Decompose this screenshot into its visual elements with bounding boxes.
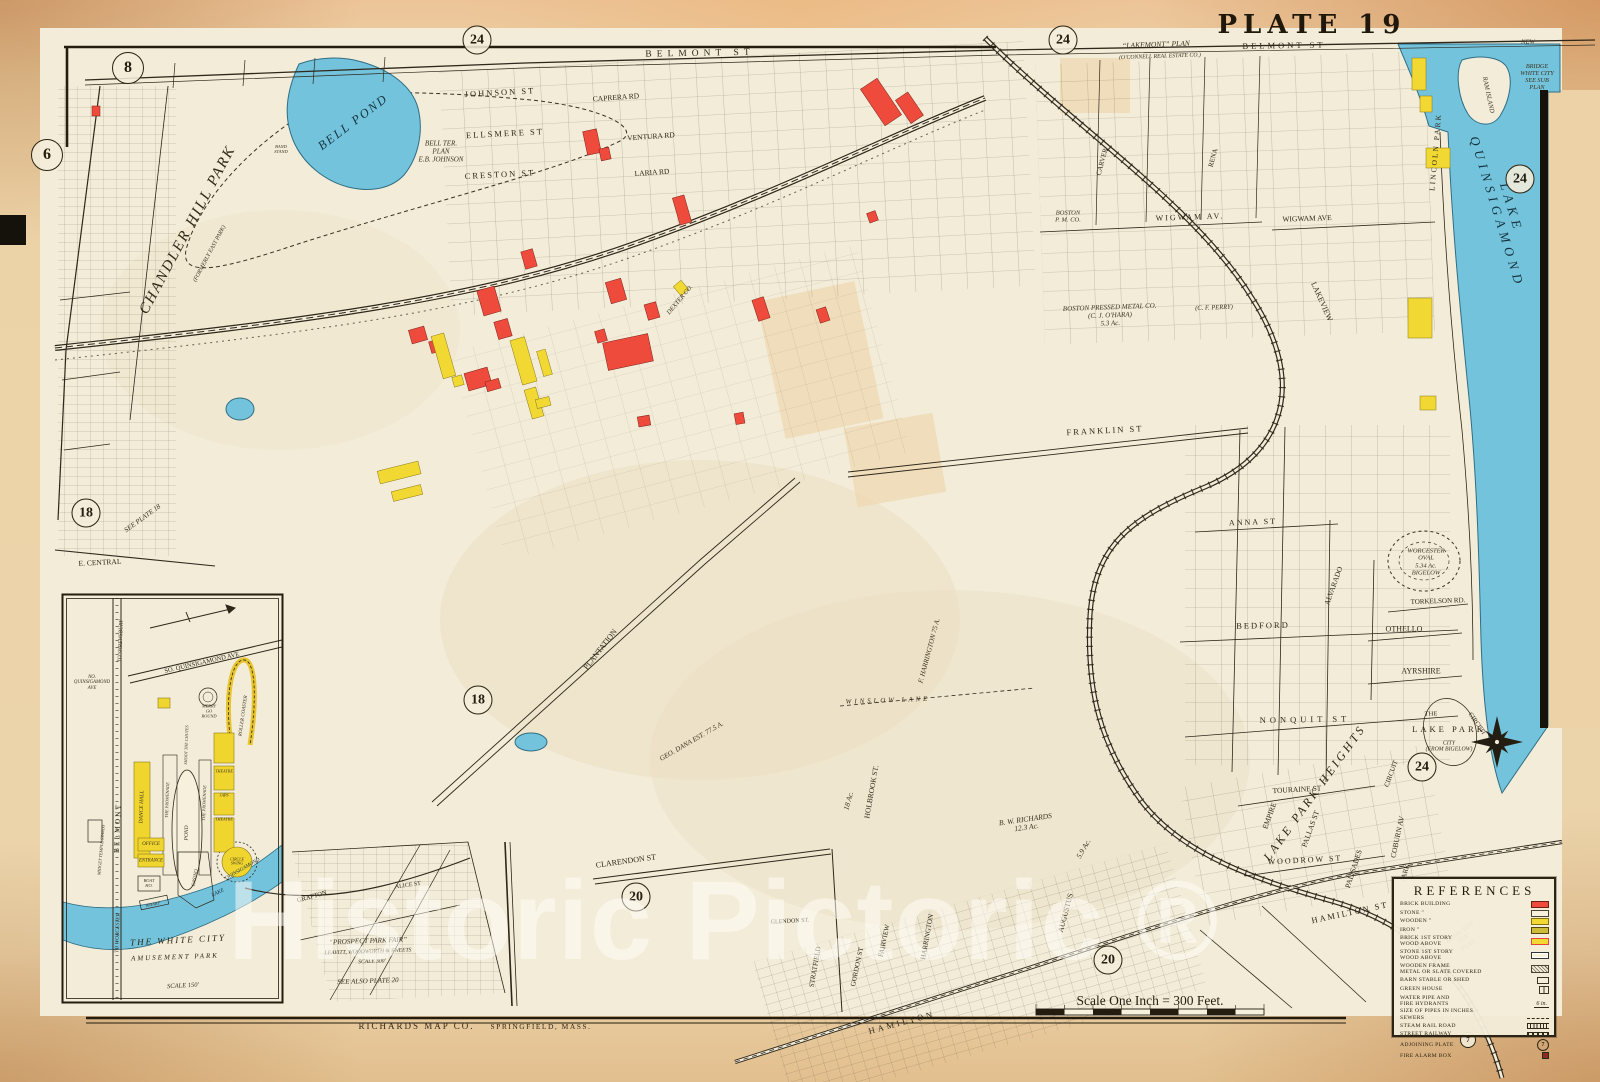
legend-swatch-stone1 bbox=[1531, 952, 1549, 959]
legend-row: SEWERS bbox=[1400, 1015, 1549, 1021]
legend-row-label: BRICK 1ST STORY WOOD ABOVE bbox=[1400, 935, 1452, 948]
references-legend: REFERENCES BRICK BUILDINGSTONE ″WOODEN ″… bbox=[1392, 877, 1556, 1037]
legend-swatch-streetry bbox=[1527, 1032, 1549, 1036]
publisher-name: RICHARDS MAP CO. bbox=[359, 1021, 475, 1031]
legend-swatch-alarm bbox=[1542, 1052, 1549, 1059]
publisher-city: SPRINGFIELD, MASS. bbox=[490, 1022, 591, 1031]
legend-swatch-iron bbox=[1531, 927, 1549, 934]
legend-row: STEAM RAIL ROAD bbox=[1400, 1023, 1549, 1029]
legend-row-label: GREEN HOUSE bbox=[1400, 986, 1443, 992]
legend-swatch-greenhouse bbox=[1539, 986, 1549, 994]
legend-row: WOODEN ″ bbox=[1400, 918, 1549, 925]
plate-number-badge: 8 bbox=[112, 52, 144, 84]
legend-row: BARN STABLE OR SHED bbox=[1400, 977, 1549, 984]
legend-swatch-plate: 7 bbox=[1537, 1039, 1549, 1051]
legend-row-label: WOODEN ″ bbox=[1400, 918, 1431, 924]
plate-number-badge: 20 bbox=[622, 883, 651, 912]
legend-swatch-steamrr bbox=[1527, 1023, 1549, 1029]
legend-row: WOODEN FRAME METAL OR SLATE COVERED bbox=[1400, 963, 1549, 976]
legend-row: FIRE ALARM BOX bbox=[1400, 1052, 1549, 1059]
legend-row-label: STEAM RAIL ROAD bbox=[1400, 1023, 1456, 1029]
publisher-imprint: RICHARDS MAP CO.SPRINGFIELD, MASS. bbox=[359, 1021, 592, 1031]
legend-row: BRICK BUILDING bbox=[1400, 901, 1549, 908]
legend-row: WATER PIPE AND FIRE HYDRANTS SIZE OF PIP… bbox=[1400, 995, 1549, 1014]
plate-number-badge: 24 bbox=[1408, 753, 1437, 782]
legend-row: GREEN HOUSE bbox=[1400, 986, 1549, 994]
legend-row-label: BRICK BUILDING bbox=[1400, 901, 1451, 907]
atlas-sheet: BELMONT STBELMONT STJOHNSON STELLSMERE S… bbox=[0, 0, 1600, 1082]
legend-row-label: SEWERS bbox=[1400, 1015, 1424, 1021]
legend-row: STONE 1ST STORY WOOD ABOVE bbox=[1400, 949, 1549, 962]
plate-number-badge: 20 bbox=[1094, 946, 1123, 975]
legend-swatch-wood bbox=[1531, 918, 1549, 925]
scale-note: Scale One Inch = 300 Feet. bbox=[1076, 993, 1223, 1009]
legend-rows: BRICK BUILDINGSTONE ″WOODEN ″IRON ″BRICK… bbox=[1400, 901, 1549, 1059]
plate-title: PLATE 19 bbox=[1218, 10, 1407, 40]
plate-number-badge: 24 bbox=[1506, 165, 1535, 194]
legend-swatch-barn bbox=[1537, 977, 1549, 984]
legend-row-label: FIRE ALARM BOX bbox=[1400, 1053, 1452, 1059]
legend-row: STREET RAILWAY bbox=[1400, 1031, 1549, 1037]
legend-swatch-metal bbox=[1531, 965, 1549, 973]
plate-badges-layer: 8624242418182020247 bbox=[0, 0, 1600, 1082]
legend-row-label: STONE ″ bbox=[1400, 910, 1424, 916]
plate-number-badge: 24 bbox=[463, 26, 492, 55]
plate-number-badge: 18 bbox=[464, 686, 493, 715]
plate-number-badge: 18 bbox=[72, 499, 101, 528]
plate-number-badge: 24 bbox=[1049, 26, 1078, 55]
legend-row: ADJOINING PLATE7 bbox=[1400, 1039, 1549, 1051]
legend-row-label: BARN STABLE OR SHED bbox=[1400, 977, 1470, 983]
plate-number-badge: 6 bbox=[31, 139, 63, 171]
legend-row-label: STONE 1ST STORY WOOD ABOVE bbox=[1400, 949, 1453, 962]
legend-swatch-brick1 bbox=[1531, 938, 1549, 945]
legend-swatch-sewer bbox=[1527, 1018, 1549, 1019]
legend-row: STONE ″ bbox=[1400, 910, 1549, 917]
legend-swatch-pipe: 6 in. bbox=[1534, 1001, 1549, 1008]
legend-row-label: ADJOINING PLATE bbox=[1400, 1042, 1454, 1048]
legend-row-label: IRON ″ bbox=[1400, 927, 1420, 933]
legend-row-label: WATER PIPE AND FIRE HYDRANTS SIZE OF PIP… bbox=[1400, 995, 1473, 1014]
legend-row: IRON ″ bbox=[1400, 927, 1549, 934]
legend-title: REFERENCES bbox=[1400, 883, 1549, 899]
legend-swatch-stone bbox=[1531, 910, 1549, 917]
legend-row: BRICK 1ST STORY WOOD ABOVE bbox=[1400, 935, 1549, 948]
legend-row-label: WOODEN FRAME METAL OR SLATE COVERED bbox=[1400, 963, 1482, 976]
legend-row-label: STREET RAILWAY bbox=[1400, 1031, 1452, 1037]
legend-swatch-brick bbox=[1531, 901, 1549, 908]
